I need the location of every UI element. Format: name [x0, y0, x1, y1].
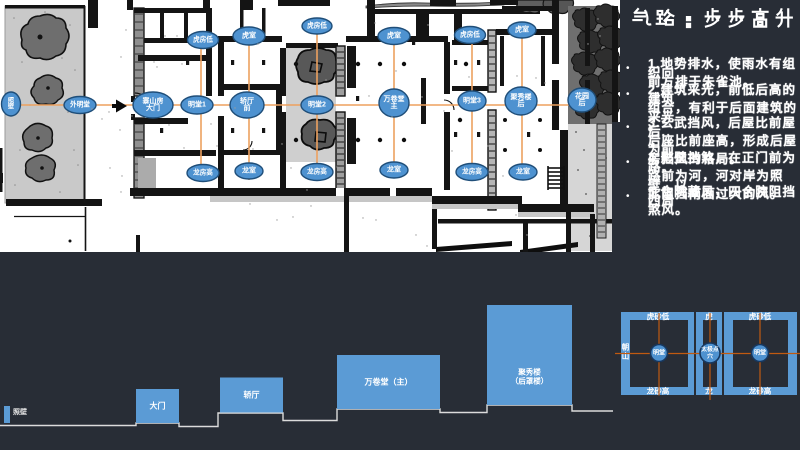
svg-text:万卷堂: 万卷堂: [383, 94, 405, 103]
svg-text:穴: 穴: [707, 352, 713, 360]
svg-text:轿厅: 轿厅: [240, 96, 254, 105]
svg-text:万卷堂（主）: 万卷堂（主）: [364, 377, 413, 387]
svg-text:虎室: 虎室: [515, 25, 529, 34]
svg-text:后: 后: [579, 98, 586, 107]
svg-text:明堂3: 明堂3: [463, 96, 481, 105]
svg-text:明堂: 明堂: [754, 349, 766, 357]
svg-text:大门: 大门: [146, 103, 160, 112]
svg-text:虎: 虎: [705, 311, 713, 321]
svg-text:虎房低: 虎房低: [460, 30, 480, 39]
svg-text:明堂2: 明堂2: [308, 100, 326, 109]
svg-text:龙房高: 龙房高: [307, 167, 327, 176]
svg-text:虎砂低: 虎砂低: [647, 311, 670, 321]
svg-text:虎房低: 虎房低: [307, 21, 327, 30]
svg-text:轿厅: 轿厅: [244, 390, 260, 400]
svg-text:虎室: 虎室: [242, 31, 256, 40]
svg-text:山: 山: [622, 351, 630, 361]
svg-text:壁: 壁: [8, 103, 15, 111]
svg-text:虎房低: 虎房低: [193, 35, 213, 44]
svg-text:龙室: 龙室: [515, 167, 530, 176]
svg-text:明堂1: 明堂1: [188, 100, 206, 109]
svg-text:后: 后: [518, 99, 525, 108]
svg-text:前: 前: [244, 103, 251, 112]
svg-text:龙砂高: 龙砂高: [647, 386, 670, 396]
svg-text:太极点: 太极点: [701, 345, 719, 353]
svg-text:照壁: 照壁: [13, 407, 27, 416]
svg-text:大门: 大门: [150, 401, 166, 411]
svg-text:聚秀楼: 聚秀楼: [510, 92, 532, 101]
svg-text:聚秀楼: 聚秀楼: [517, 367, 541, 377]
svg-text:龙室: 龙室: [241, 166, 256, 175]
svg-text:龙: 龙: [705, 386, 713, 396]
svg-text:朝: 朝: [622, 342, 630, 352]
svg-text:花园: 花园: [575, 91, 589, 100]
svg-text:龙房高: 龙房高: [462, 167, 482, 176]
svg-text:龙室: 龙室: [386, 165, 401, 174]
svg-text:（后罩楼）: （后罩楼）: [511, 376, 549, 386]
svg-text:外明堂: 外明堂: [70, 100, 90, 109]
svg-text:龙房高: 龙房高: [193, 168, 213, 177]
svg-text:寨山房: 寨山房: [142, 96, 164, 105]
svg-text:主: 主: [391, 101, 398, 110]
svg-text:明堂: 明堂: [653, 349, 665, 357]
svg-text:虎室: 虎室: [387, 31, 401, 40]
